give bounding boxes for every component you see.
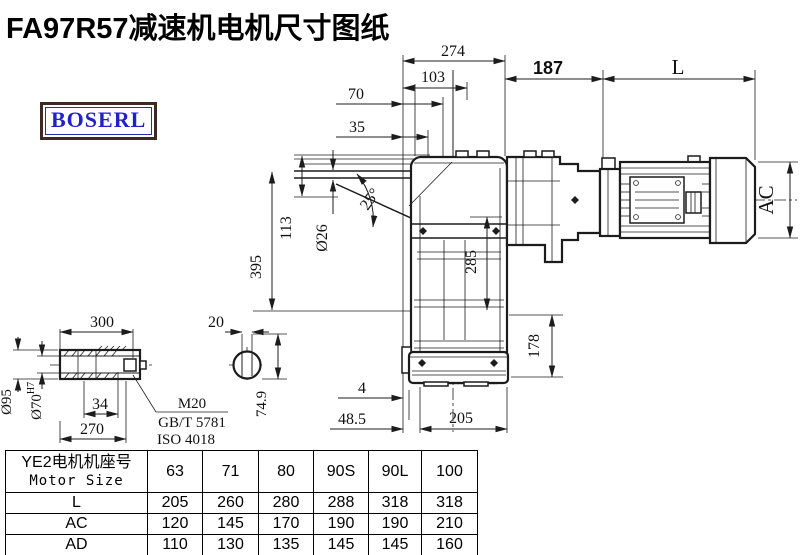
cell-AD-100: 160: [422, 535, 478, 555]
dim-dia26: Ø26: [314, 224, 331, 252]
cell-AC-71: 145: [203, 514, 259, 535]
dim-70: 70: [348, 86, 364, 103]
row-label-AD: AD: [6, 535, 148, 555]
label-std-iso: ISO 4018: [157, 432, 215, 448]
table-header-row: YE2电机机座号 Motor Size 63 71 80 90S 90L 100: [6, 451, 478, 493]
header-size-100: 100: [422, 451, 478, 493]
header-size-90s: 90S: [314, 451, 369, 493]
dim-25deg: 25°: [357, 185, 384, 213]
dim-187: 187: [533, 58, 563, 78]
header-motor-size-en: Motor Size: [6, 473, 147, 489]
table-row-AD: AD 110 130 135 145 145 160: [6, 535, 478, 555]
cell-L-80: 280: [259, 493, 314, 514]
bottom-dimensions: 4 48.5 205: [330, 380, 507, 433]
dim-AC: AC: [754, 185, 778, 214]
dim-103: 103: [421, 69, 445, 86]
cell-AD-71: 130: [203, 535, 259, 555]
dim-270: 270: [80, 421, 104, 438]
dim-20: 20: [208, 314, 224, 331]
label-thread-m20: M20: [178, 396, 206, 412]
row-label-L: L: [6, 493, 148, 514]
cell-L-63: 205: [148, 493, 203, 514]
dim-35: 35: [349, 119, 365, 136]
shaft-cross-section: 20 74.9: [208, 314, 287, 417]
gearbox-rear-cover: [507, 151, 600, 262]
dim-274: 274: [441, 43, 465, 60]
dim-74-9: 74.9: [254, 391, 270, 417]
cell-AD-90s: 145: [314, 535, 369, 555]
header-motor-size: YE2电机机座号 Motor Size: [6, 451, 148, 493]
cell-L-90l: 318: [369, 493, 422, 514]
cell-AC-80: 170: [259, 514, 314, 535]
motor-size-table: YE2电机机座号 Motor Size 63 71 80 90S 90L 100…: [5, 450, 478, 555]
dim-dia70-tolerance: H7: [26, 382, 37, 394]
cell-AD-63: 110: [148, 535, 203, 555]
hollow-shaft-detail: 300 Ø95 Ø70 H7 34 270 M20 GB/T 5781 ISO: [0, 314, 228, 448]
table-row-AC: AC 120 145 170 190 190 210: [6, 514, 478, 535]
header-size-90l: 90L: [369, 451, 422, 493]
gearbox-front-view: 285: [402, 151, 508, 386]
dim-395: 395: [248, 255, 265, 279]
dim-178: 178: [526, 334, 543, 358]
header-size-63: 63: [148, 451, 203, 493]
header-motor-size-cn: YE2电机机座号: [6, 454, 147, 472]
dim-4: 4: [358, 380, 366, 397]
dim-113: 113: [278, 216, 295, 239]
cell-L-90s: 288: [314, 493, 369, 514]
table-row-L: L 205 260 280 288 318 318: [6, 493, 478, 514]
label-std-gb: GB/T 5781: [158, 415, 226, 431]
cell-L-71: 260: [203, 493, 259, 514]
dim-34: 34: [92, 396, 108, 413]
cell-AC-63: 120: [148, 514, 203, 535]
cell-AD-80: 135: [259, 535, 314, 555]
cell-AC-90l: 190: [369, 514, 422, 535]
cell-AC-100: 210: [422, 514, 478, 535]
row-label-AC: AC: [6, 514, 148, 535]
flange-dimension: 178: [509, 315, 563, 377]
cell-L-100: 318: [422, 493, 478, 514]
motor-side-view: [600, 156, 755, 243]
dim-205: 205: [449, 410, 473, 427]
drawing-sheet: FA97R57减速机电机尺寸图纸 BOSERL: [0, 0, 800, 555]
header-size-71: 71: [203, 451, 259, 493]
header-size-80: 80: [259, 451, 314, 493]
dim-dia95: Ø95: [0, 389, 15, 415]
dim-L: L: [672, 55, 685, 79]
dim-dia70: Ø70: [29, 394, 45, 420]
dim-48-5: 48.5: [338, 411, 366, 428]
dim-300: 300: [90, 314, 114, 331]
dim-285: 285: [463, 250, 480, 274]
cell-AC-90s: 190: [314, 514, 369, 535]
cell-AD-90l: 145: [369, 535, 422, 555]
